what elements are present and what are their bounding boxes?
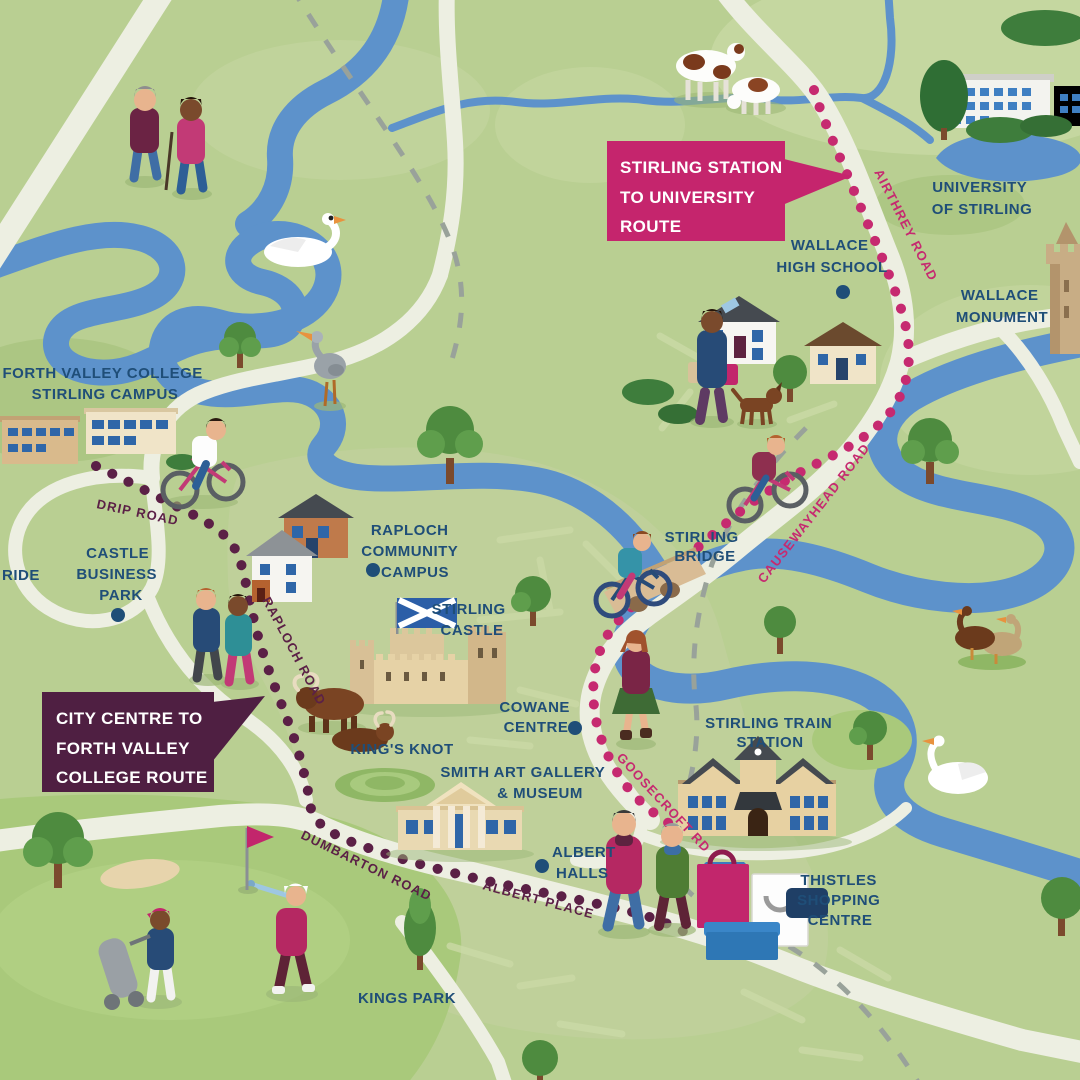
dot-albert-halls bbox=[535, 859, 549, 873]
stirling-illustrated-map: AIRTHREY ROAD CAUSEWAYHEAD ROAD GOOSECRO… bbox=[0, 0, 1080, 1080]
kings-knot-earthwork bbox=[335, 768, 435, 802]
map-canvas: AIRTHREY ROAD CAUSEWAYHEAD ROAD GOOSECRO… bbox=[0, 0, 1080, 1080]
dot-cowane-centre bbox=[568, 721, 582, 735]
dot-raploch-campus bbox=[366, 563, 380, 577]
callout-city-text: CITY CENTRE TO FORTH VALLEY COLLEGE ROUT… bbox=[56, 709, 208, 787]
label-kings-knot: KING'S KNOT bbox=[350, 741, 453, 758]
bush-icon bbox=[622, 379, 674, 405]
label-thistles-shopping-centre: THISTLES SHOPPING CENTRE bbox=[797, 872, 885, 929]
label-park-and-ride: RIDE bbox=[2, 567, 40, 584]
label-kings-park: KINGS PARK bbox=[358, 990, 456, 1007]
pine-tree-icon bbox=[920, 60, 968, 132]
station-canopy bbox=[734, 792, 782, 810]
dot-castle-business-park bbox=[111, 608, 125, 622]
station-entrance bbox=[748, 808, 768, 836]
dot-wallace-high-school bbox=[836, 285, 850, 299]
